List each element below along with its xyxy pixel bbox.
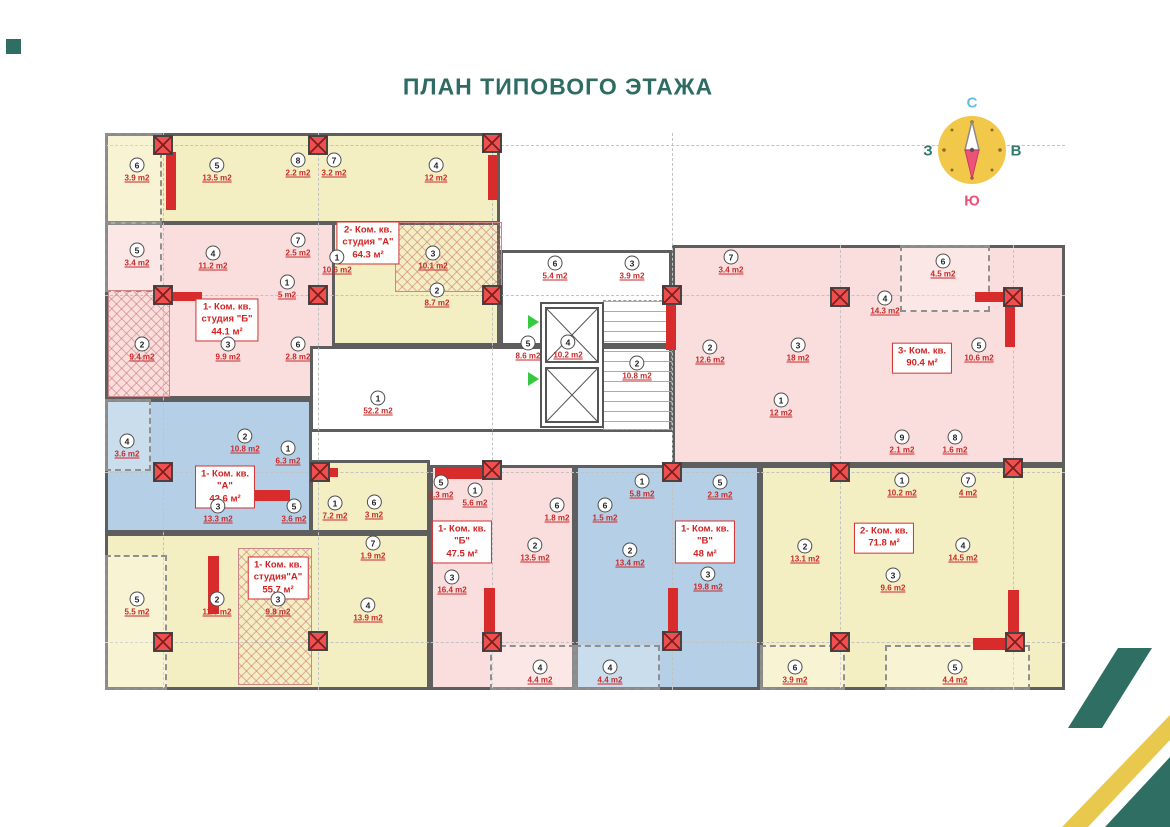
- room-marker: 210.8 m2: [230, 429, 259, 454]
- room-number: 7: [327, 153, 342, 168]
- room-marker: 211.9 m2: [203, 592, 232, 617]
- room-marker: 73.2 m2: [322, 153, 347, 178]
- room-number: 4: [533, 660, 548, 675]
- room-marker: 414.5 m2: [948, 538, 977, 563]
- column-marker: [482, 632, 502, 652]
- room-marker: 15.6 m2: [463, 483, 488, 508]
- room-number: 2: [702, 340, 717, 355]
- room-number: 5: [713, 475, 728, 490]
- column-marker: [830, 632, 850, 652]
- room-number: 6: [291, 337, 306, 352]
- room-number: 5: [434, 475, 449, 490]
- room-area: 1.8 m2: [545, 514, 570, 523]
- room-number: 2: [797, 539, 812, 554]
- room-marker: 53.6 m2: [282, 499, 307, 524]
- bearing-wall: [488, 155, 498, 200]
- apartment-name: 2- Ком. кв.: [344, 224, 392, 236]
- column-marker: [830, 462, 850, 482]
- room-marker: 110.2 m2: [887, 473, 916, 498]
- room-number: 7: [291, 233, 306, 248]
- column-marker: [153, 632, 173, 652]
- room-area: 5.4 m2: [543, 272, 568, 281]
- room-number: 3: [625, 256, 640, 271]
- apartment-label-90-4: 3- Ком. кв. 90.4 м²: [892, 343, 952, 374]
- column-marker: [830, 287, 850, 307]
- room-area: 2.1 m2: [890, 446, 915, 455]
- room-number: 3: [271, 592, 286, 607]
- room-area: 3.2 m2: [322, 169, 347, 178]
- room-marker: 53.4 m2: [125, 243, 150, 268]
- room-area: 2.8 m2: [286, 353, 311, 362]
- room-area: 13.5 m2: [520, 554, 549, 563]
- room-area: 3.6 m2: [282, 515, 307, 524]
- room-area: 9.6 m2: [881, 584, 906, 593]
- room-number: 5: [971, 338, 986, 353]
- apartment-area: 64.3 м²: [352, 249, 383, 261]
- room-area: 5 m2: [278, 291, 296, 300]
- room-number: 4: [877, 291, 892, 306]
- elevator-arrow-icon: [528, 315, 539, 329]
- room-area: 13.4 m2: [615, 559, 644, 568]
- column-marker: [662, 462, 682, 482]
- room-area: 13.9 m2: [353, 614, 382, 623]
- room-marker: 61.8 m2: [545, 498, 570, 523]
- room-area: 9.8 m2: [266, 608, 291, 617]
- room-area: 2.5 m2: [286, 249, 311, 258]
- floor-plan-page: ПЛАН ТИПОВОГО ЭТАЖА С Ю З В: [0, 0, 1170, 827]
- room-marker: 61.5 m2: [593, 498, 618, 523]
- room-marker: 44.4 m2: [598, 660, 623, 685]
- room-marker: 82.2 m2: [286, 153, 311, 178]
- room-marker: 63 m2: [365, 495, 383, 520]
- room-area: 2.3 m2: [429, 491, 454, 500]
- room-marker: 52.3 m2: [429, 475, 454, 500]
- apartment-name: "В": [697, 536, 713, 548]
- room-number: 4: [205, 246, 220, 261]
- room-number: 1: [328, 496, 343, 511]
- apartment-label-48: 1- Ком. кв. "В" 48 м²: [675, 520, 735, 563]
- room-number: 3: [221, 337, 236, 352]
- room-number: 6: [366, 495, 381, 510]
- room-number: 3: [444, 570, 459, 585]
- apartment-name: 1- Ком. кв.: [438, 523, 486, 535]
- column-marker: [482, 460, 502, 480]
- room-marker: 313.3 m2: [203, 499, 232, 524]
- room-area: 5.5 m2: [125, 608, 150, 617]
- room-area: 1.9 m2: [361, 552, 386, 561]
- room-area: 4.5 m2: [931, 270, 956, 279]
- room-number: 2: [135, 337, 150, 352]
- room-number: 2: [622, 543, 637, 558]
- room-area: 10.6 m2: [322, 266, 351, 275]
- room-area: 11.9 m2: [203, 608, 232, 617]
- room-marker: 413.9 m2: [353, 598, 382, 623]
- apartment-name: 3- Ком. кв.: [898, 346, 946, 358]
- column-marker: [153, 285, 173, 305]
- room-number: 6: [548, 256, 563, 271]
- page-title: ПЛАН ТИПОВОГО ЭТАЖА: [403, 74, 713, 101]
- room-area: 3.9 m2: [620, 272, 645, 281]
- apartment-area: 90.4 м²: [906, 358, 937, 370]
- room-number: 6: [598, 498, 613, 513]
- corner-accent-square: [6, 39, 21, 54]
- room-area: 16.4 m2: [437, 586, 466, 595]
- room-area: 14.3 m2: [870, 307, 899, 316]
- column-marker: [662, 285, 682, 305]
- elevator-arrow-icon: [528, 372, 539, 386]
- room-area: 11.2 m2: [199, 262, 228, 271]
- room-marker: 28.7 m2: [425, 283, 450, 308]
- room-number: 8: [948, 430, 963, 445]
- room-marker: 212.6 m2: [695, 340, 724, 365]
- room-marker: 16.3 m2: [276, 441, 301, 466]
- column-marker: [310, 462, 330, 482]
- room-area: 13.5 m2: [202, 174, 231, 183]
- apartment-area: 71.8 м²: [868, 538, 899, 550]
- room-area: 13.3 m2: [203, 515, 232, 524]
- bearing-wall: [484, 588, 495, 636]
- room-number: 7: [724, 250, 739, 265]
- column-marker: [308, 285, 328, 305]
- room-area: 10.8 m2: [622, 372, 651, 381]
- room-marker: 513.5 m2: [202, 158, 231, 183]
- apartment-area: 47.5 м²: [446, 548, 477, 560]
- room-area: 5.8 m2: [630, 490, 655, 499]
- bearing-wall: [668, 588, 678, 633]
- room-area: 4 m2: [959, 489, 977, 498]
- room-marker: 110.6 m2: [322, 250, 351, 275]
- room-number: 7: [960, 473, 975, 488]
- room-area: 3.9 m2: [783, 676, 808, 685]
- room-number: 5: [130, 592, 145, 607]
- room-marker: 411.2 m2: [199, 246, 228, 271]
- elevator-shafts: [540, 302, 604, 428]
- room-number: 5: [130, 243, 145, 258]
- room-area: 10.2 m2: [887, 489, 916, 498]
- room-marker: 319.8 m2: [693, 567, 722, 592]
- column-marker: [153, 462, 173, 482]
- room-marker: 210.8 m2: [622, 356, 651, 381]
- room-number: 4: [560, 335, 575, 350]
- room-marker: 15 m2: [278, 275, 296, 300]
- room-area: 1.6 m2: [943, 446, 968, 455]
- apartment-label-44-1: 1- Ком. кв. студия "Б" 44.1 м²: [195, 298, 258, 341]
- room-number: 4: [429, 158, 444, 173]
- room-marker: 15.8 m2: [630, 474, 655, 499]
- bearing-wall: [1005, 300, 1015, 347]
- compass-south-label: Ю: [964, 193, 979, 210]
- room-marker: 54.4 m2: [943, 660, 968, 685]
- room-marker: 55.5 m2: [125, 592, 150, 617]
- room-number: 5: [287, 499, 302, 514]
- room-area: 4.4 m2: [598, 676, 623, 685]
- compass-rose-icon: [936, 114, 1008, 186]
- room-number: 3: [886, 568, 901, 583]
- room-number: 3: [791, 338, 806, 353]
- room-number: 3: [210, 499, 225, 514]
- room-area: 4.4 m2: [528, 676, 553, 685]
- room-area: 6.3 m2: [276, 457, 301, 466]
- room-marker: 33.9 m2: [620, 256, 645, 281]
- room-area: 10.6 m2: [964, 354, 993, 363]
- room-number: 6: [788, 660, 803, 675]
- apartment-label-47-5: 1- Ком. кв. "Б" 47.5 м²: [432, 520, 492, 563]
- room-number: 4: [603, 660, 618, 675]
- room-area: 9.4 m2: [130, 353, 155, 362]
- apartment-name: студия "А": [342, 237, 393, 249]
- room-marker: 39.8 m2: [266, 592, 291, 617]
- room-marker: 64.5 m2: [931, 254, 956, 279]
- room-number: 6: [130, 158, 145, 173]
- room-number: 1: [329, 250, 344, 265]
- dining-hatch-area: [395, 222, 502, 292]
- room-number: 4: [120, 434, 135, 449]
- room-marker: 39.6 m2: [881, 568, 906, 593]
- compass: С Ю З В: [922, 94, 1022, 212]
- column-marker: [662, 631, 682, 651]
- room-area: 5.6 m2: [463, 499, 488, 508]
- room-area: 13.1 m2: [790, 555, 819, 564]
- column-marker: [1005, 632, 1025, 652]
- room-number: 4: [360, 598, 375, 613]
- room-marker: 63.9 m2: [783, 660, 808, 685]
- room-number: 2: [237, 429, 252, 444]
- room-number: 2: [209, 592, 224, 607]
- room-number: 5: [209, 158, 224, 173]
- room-area: 10.1 m2: [418, 262, 447, 271]
- room-number: 5: [948, 660, 963, 675]
- room-area: 10.8 m2: [230, 445, 259, 454]
- room-area: 52.2 m2: [363, 407, 392, 416]
- room-marker: 63.9 m2: [125, 158, 150, 183]
- room-marker: 39.9 m2: [216, 337, 241, 362]
- room-marker: 414.3 m2: [870, 291, 899, 316]
- room-number: 3: [425, 246, 440, 261]
- room-marker: 92.1 m2: [890, 430, 915, 455]
- room-marker: 17.2 m2: [323, 496, 348, 521]
- room-number: 5: [521, 336, 536, 351]
- room-area: 19.8 m2: [693, 583, 722, 592]
- room-area: 7.2 m2: [323, 512, 348, 521]
- apartment-name: 2- Ком. кв.: [860, 526, 908, 538]
- apartment-name: "Б": [454, 536, 470, 548]
- room-number: 1: [468, 483, 483, 498]
- room-number: 1: [774, 393, 789, 408]
- room-number: 1: [635, 474, 650, 489]
- room-number: 2: [629, 356, 644, 371]
- compass-north-label: С: [967, 95, 978, 112]
- room-area: 3.9 m2: [125, 174, 150, 183]
- room-area: 18 m2: [787, 354, 810, 363]
- room-area: 12 m2: [770, 409, 793, 418]
- room-area: 3.6 m2: [115, 450, 140, 459]
- room-area: 3.4 m2: [125, 259, 150, 268]
- room-marker: 65.4 m2: [543, 256, 568, 281]
- axis-line: [318, 133, 319, 690]
- column-marker: [482, 133, 502, 153]
- column-marker: [153, 135, 173, 155]
- column-marker: [308, 631, 328, 651]
- room-marker: 410.2 m2: [553, 335, 582, 360]
- compass-east-label: В: [1011, 143, 1022, 160]
- column-marker: [1003, 458, 1023, 478]
- room-area: 12.6 m2: [695, 356, 724, 365]
- room-number: 1: [370, 391, 385, 406]
- balcony: [105, 555, 167, 690]
- bearing-wall: [166, 152, 176, 210]
- apartment-area: 48 м²: [693, 548, 716, 560]
- room-marker: 62.8 m2: [286, 337, 311, 362]
- column-marker: [482, 285, 502, 305]
- column-marker: [1003, 287, 1023, 307]
- bearing-wall: [666, 305, 676, 350]
- apartment-name: 1- Ком. кв.: [254, 559, 302, 571]
- room-number: 8: [291, 153, 306, 168]
- room-marker: 43.6 m2: [115, 434, 140, 459]
- apartment-name: 1- Ком. кв.: [203, 301, 251, 313]
- room-area: 1.5 m2: [593, 514, 618, 523]
- room-marker: 213.5 m2: [520, 538, 549, 563]
- room-number: 7: [366, 536, 381, 551]
- room-marker: 310.1 m2: [418, 246, 447, 271]
- room-marker: 71.9 m2: [361, 536, 386, 561]
- room-marker: 510.6 m2: [964, 338, 993, 363]
- room-number: 2: [527, 538, 542, 553]
- room-number: 9: [895, 430, 910, 445]
- room-area: 8.6 m2: [516, 352, 541, 361]
- apartment-name: 1- Ком. кв.: [201, 468, 249, 480]
- room-marker: 73.4 m2: [719, 250, 744, 275]
- room-area: 10.2 m2: [553, 351, 582, 360]
- room-area: 14.5 m2: [948, 554, 977, 563]
- room-number: 3: [700, 567, 715, 582]
- room-area: 2.2 m2: [286, 169, 311, 178]
- apartment-name: студия "Б": [201, 314, 252, 326]
- room-marker: 213.4 m2: [615, 543, 644, 568]
- room-area: 4.4 m2: [943, 676, 968, 685]
- apartment-block-3room-90: [672, 245, 1065, 465]
- room-number: 6: [936, 254, 951, 269]
- room-marker: 412 m2: [425, 158, 448, 183]
- apartment-name: студия"А": [254, 572, 303, 584]
- room-marker: 52.3 m2: [708, 475, 733, 500]
- room-number: 1: [281, 441, 296, 456]
- room-area: 3 m2: [365, 511, 383, 520]
- room-marker: 58.6 m2: [516, 336, 541, 361]
- apartment-label-71-8: 2- Ком. кв. 71.8 м²: [854, 523, 914, 554]
- room-number: 1: [894, 473, 909, 488]
- room-number: 4: [955, 538, 970, 553]
- compass-west-label: З: [923, 143, 932, 160]
- room-marker: 74 m2: [959, 473, 977, 498]
- room-number: 6: [550, 498, 565, 513]
- room-number: 2: [430, 283, 445, 298]
- room-marker: 81.6 m2: [943, 430, 968, 455]
- apartment-name: 1- Ком. кв.: [681, 523, 729, 535]
- room-marker: 29.4 m2: [130, 337, 155, 362]
- room-marker: 318 m2: [787, 338, 810, 363]
- room-marker: 112 m2: [770, 393, 793, 418]
- room-area: 12 m2: [425, 174, 448, 183]
- room-number: 1: [279, 275, 294, 290]
- room-marker: 213.1 m2: [790, 539, 819, 564]
- room-area: 3.4 m2: [719, 266, 744, 275]
- room-area: 2.3 m2: [708, 491, 733, 500]
- room-area: 8.7 m2: [425, 299, 450, 308]
- axis-line: [105, 145, 1065, 146]
- room-marker: 316.4 m2: [437, 570, 466, 595]
- room-marker: 152.2 m2: [363, 391, 392, 416]
- room-marker: 44.4 m2: [528, 660, 553, 685]
- room-marker: 72.5 m2: [286, 233, 311, 258]
- apartment-name: "А": [217, 481, 233, 493]
- room-area: 9.9 m2: [216, 353, 241, 362]
